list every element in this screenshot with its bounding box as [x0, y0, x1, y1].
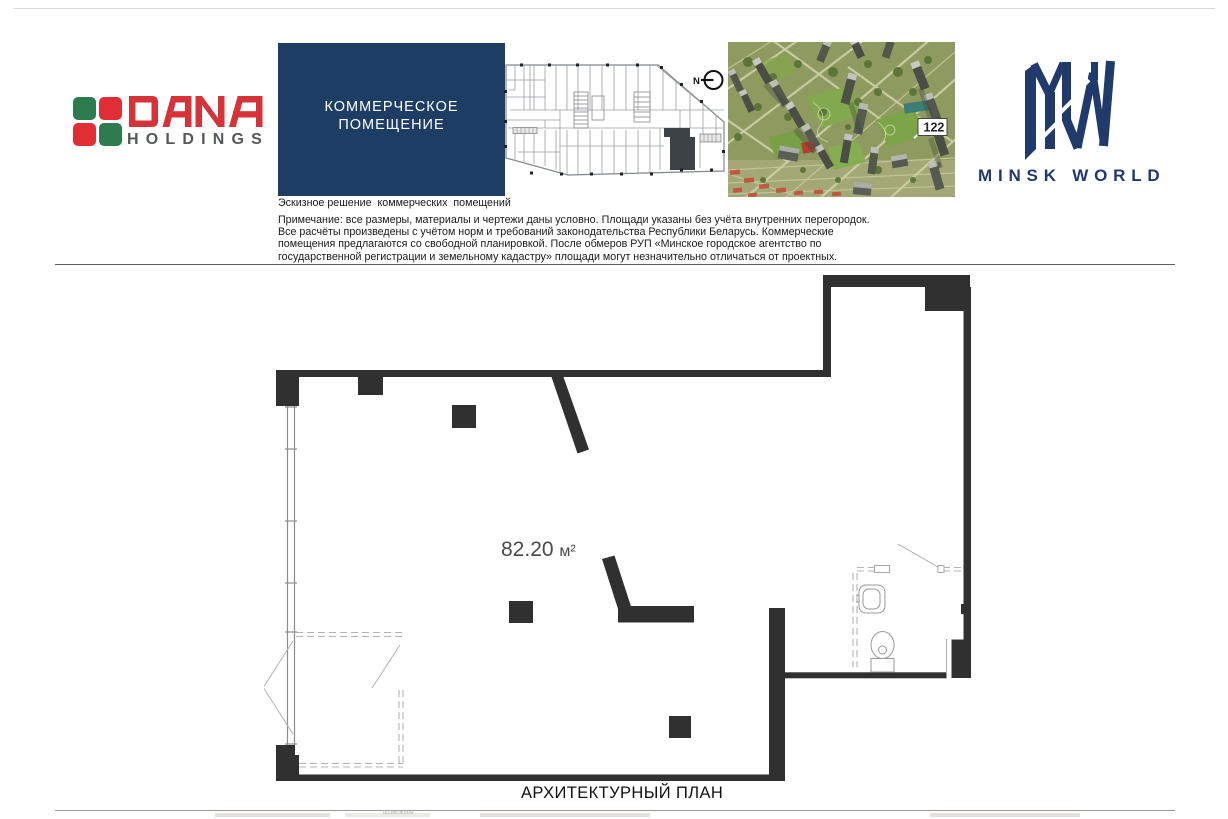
svg-text:82.20 м²: 82.20 м²: [501, 538, 576, 561]
